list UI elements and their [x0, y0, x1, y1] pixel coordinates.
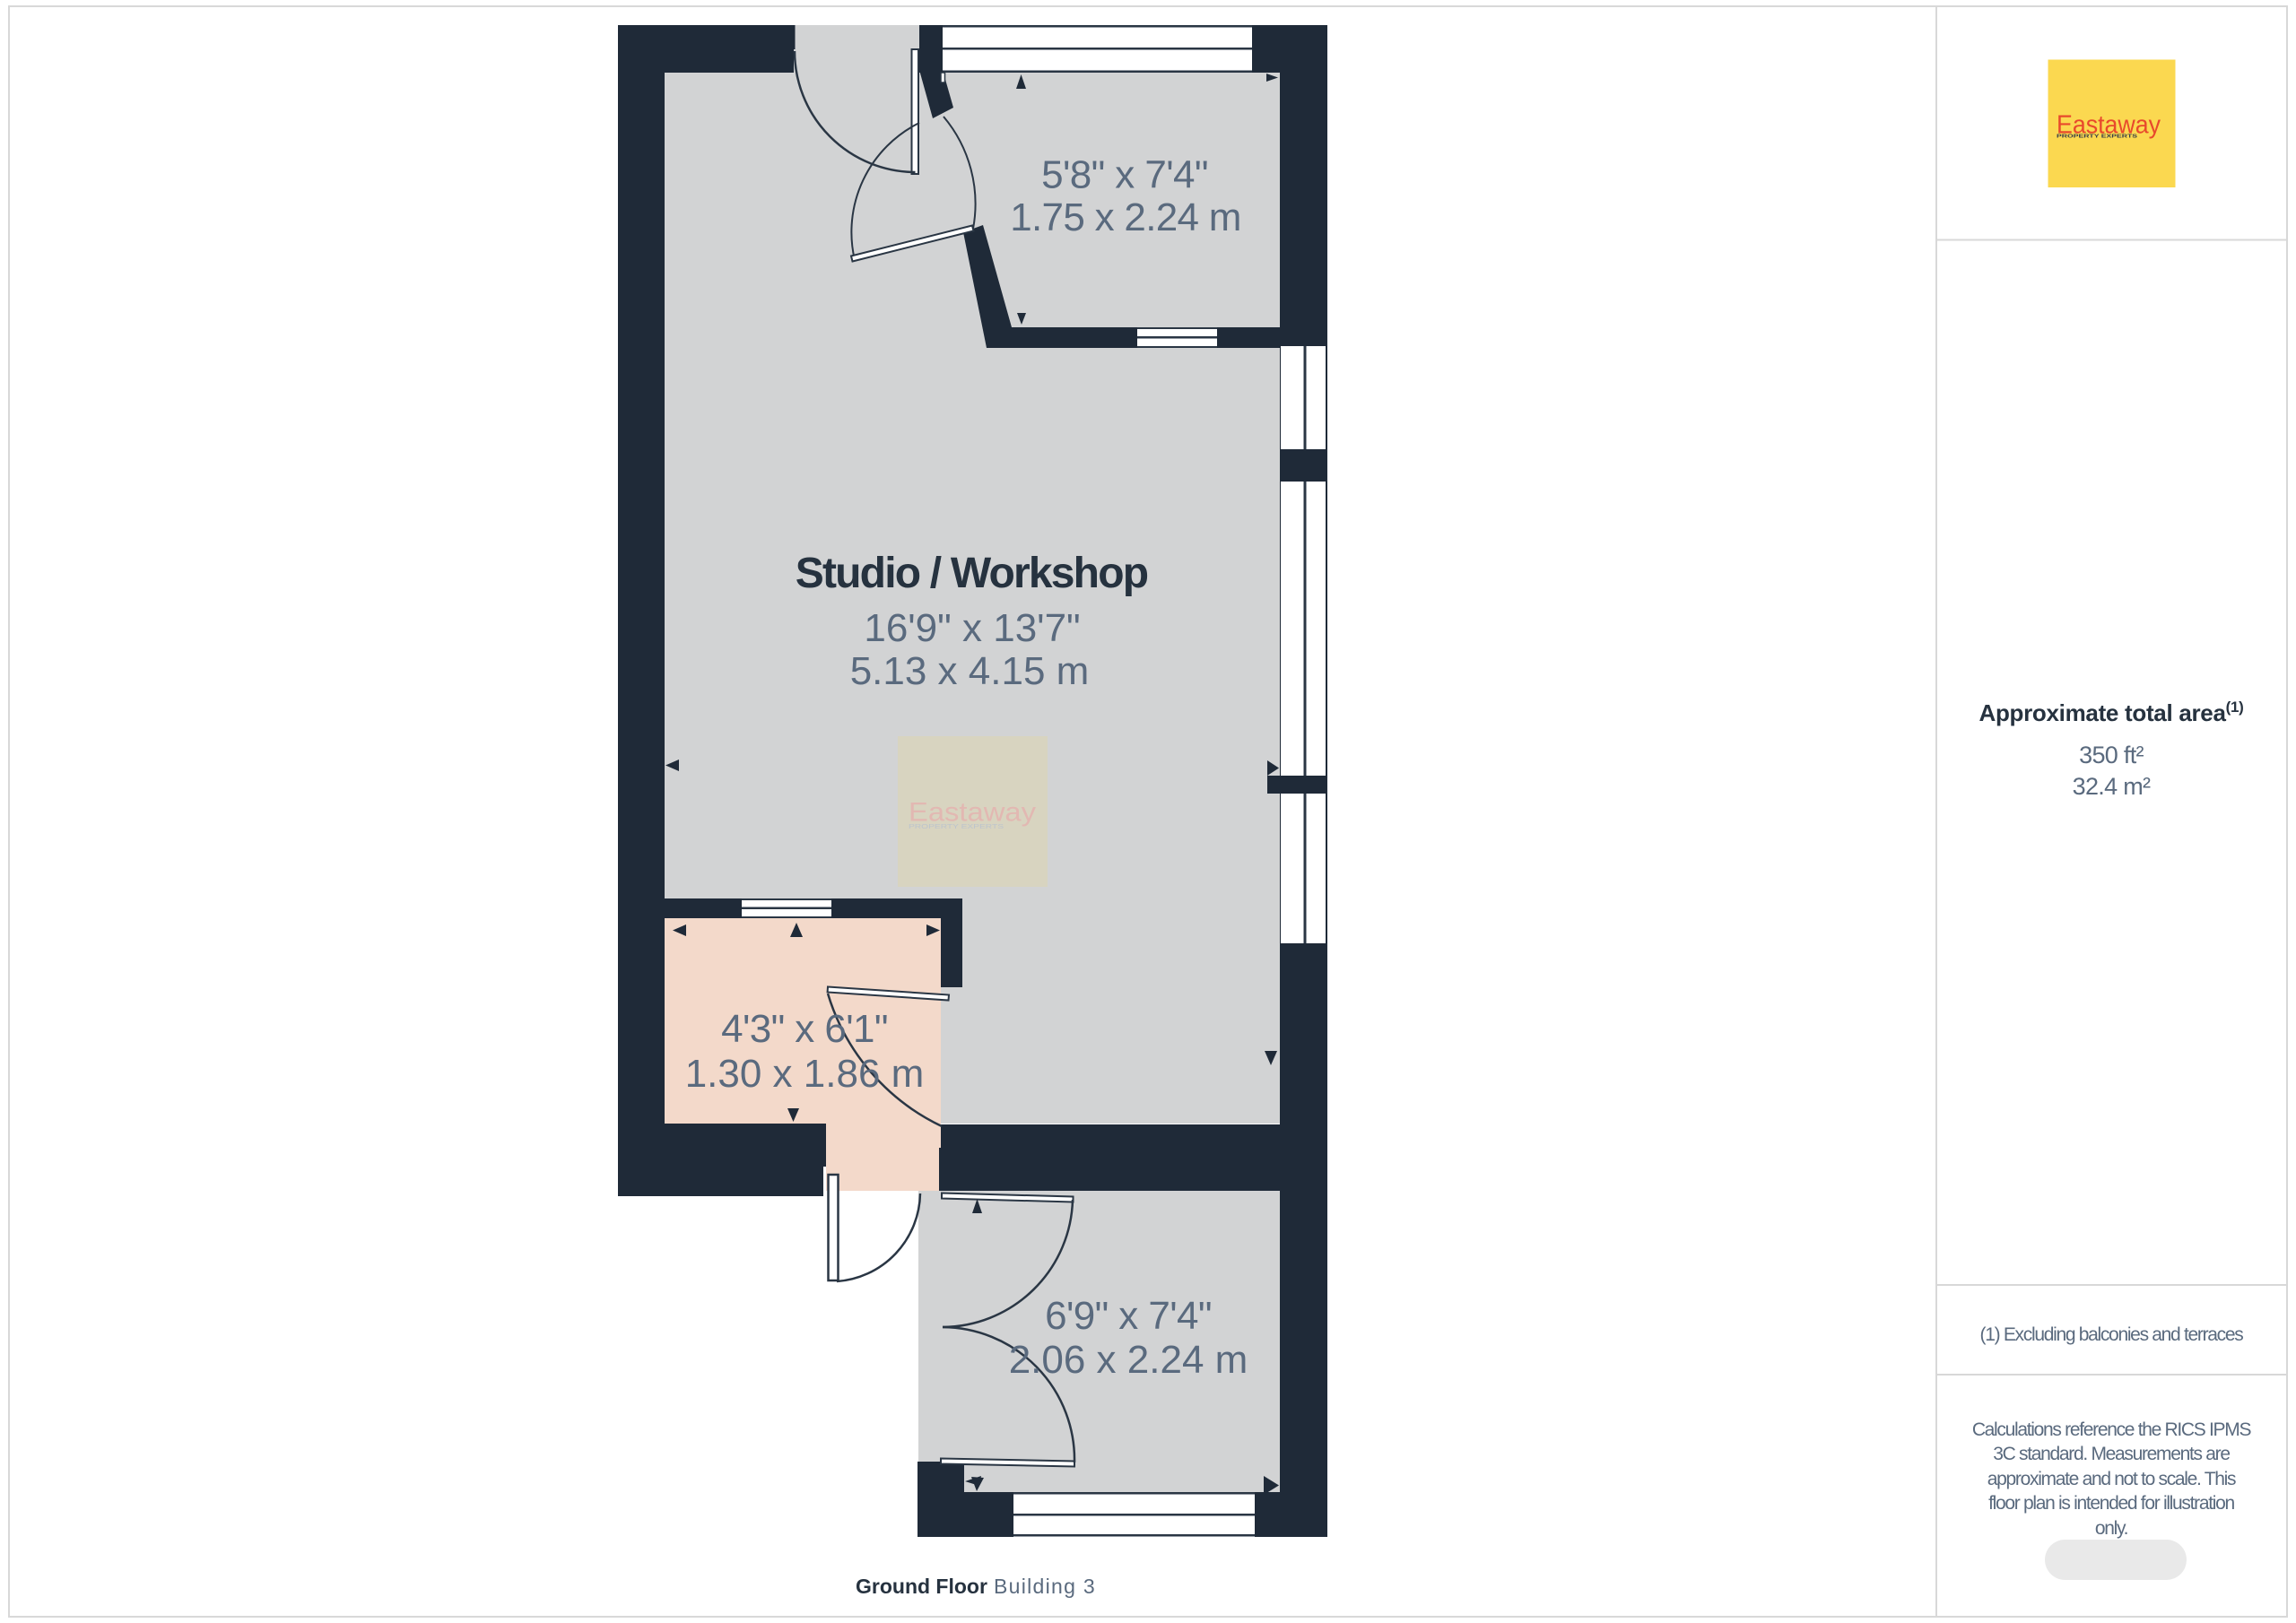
svg-text:only.: only.: [2095, 1518, 2127, 1539]
svg-text:Approximate total area(1): Approximate total area(1): [1979, 699, 2243, 726]
svg-text:4'3" x 6'1": 4'3" x 6'1": [721, 1007, 888, 1051]
svg-text:1.75 x 2.24 m: 1.75 x 2.24 m: [1010, 195, 1241, 239]
svg-text:350 ft²: 350 ft²: [2079, 742, 2144, 768]
svg-text:Building 3: Building 3: [994, 1575, 1096, 1598]
svg-text:5.13 x 4.15 m: 5.13 x 4.15 m: [850, 649, 1090, 693]
svg-text:PROPERTY EXPERTS: PROPERTY EXPERTS: [2057, 135, 2138, 140]
svg-text:3C standard. Measurements are: 3C standard. Measurements are: [1993, 1444, 2230, 1464]
svg-text:1.30 x 1.86 m: 1.30 x 1.86 m: [685, 1052, 925, 1096]
svg-text:(1) Excluding balconies and te: (1) Excluding balconies and terraces: [1980, 1324, 2244, 1345]
svg-text:Ground Floor: Ground Floor: [856, 1575, 987, 1598]
svg-text:PROPERTY EXPERTS: PROPERTY EXPERTS: [909, 824, 1004, 830]
svg-text:16'9" x 13'7": 16'9" x 13'7": [864, 606, 1080, 650]
svg-text:floor plan is intended for ill: floor plan is intended for illustration: [1988, 1493, 2234, 1514]
svg-text:5'8" x 7'4": 5'8" x 7'4": [1041, 153, 1208, 197]
svg-text:2.06 x 2.24 m: 2.06 x 2.24 m: [1009, 1338, 1248, 1382]
svg-text:approximate and not to scale.: approximate and not to scale. This: [1987, 1469, 2236, 1489]
svg-text:Calculations reference the RIC: Calculations reference the RICS IPMS: [1972, 1419, 2252, 1440]
svg-text:32.4 m²: 32.4 m²: [2073, 773, 2151, 800]
svg-text:6'9" x 7'4": 6'9" x 7'4": [1045, 1294, 1212, 1338]
svg-text:Studio / Workshop: Studio / Workshop: [796, 550, 1148, 597]
svg-text:Eastaway: Eastaway: [909, 798, 1036, 828]
